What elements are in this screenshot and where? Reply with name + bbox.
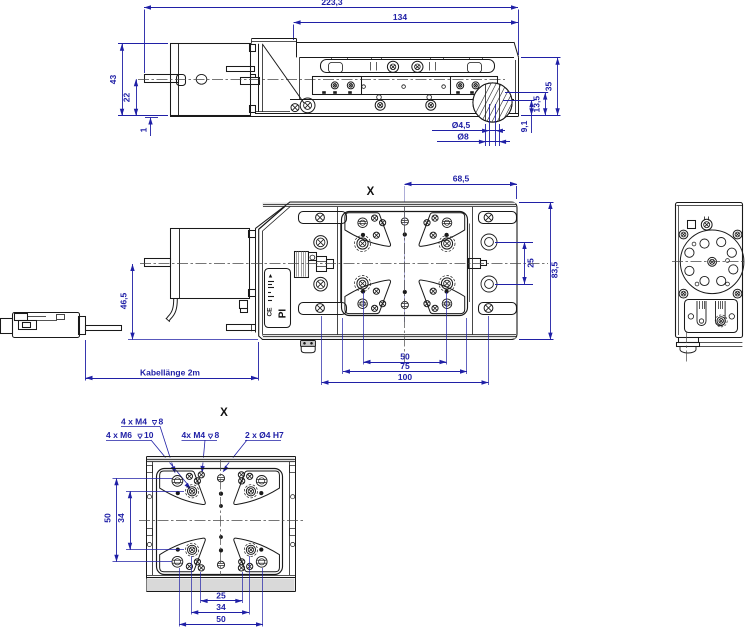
svg-text:43: 43 (108, 75, 118, 85)
svg-text:50: 50 (102, 513, 112, 523)
svg-text:PI: PI (278, 309, 289, 319)
svg-text:34: 34 (216, 602, 226, 612)
svg-text:Kabellänge 2m: Kabellänge 2m (140, 367, 200, 377)
svg-text:223,3: 223,3 (321, 0, 343, 7)
svg-text:22: 22 (122, 93, 132, 103)
svg-text:34: 34 (116, 513, 126, 523)
svg-text:10: 10 (144, 430, 154, 440)
svg-text:25: 25 (216, 590, 226, 600)
svg-text:75: 75 (400, 361, 410, 371)
svg-text:134: 134 (393, 12, 407, 22)
svg-text:▲: ▲ (268, 274, 274, 280)
svg-text:Ø4,5: Ø4,5 (452, 120, 471, 130)
svg-text:4 x M6: 4 x M6 (106, 430, 132, 440)
svg-text:X: X (367, 186, 375, 198)
svg-text:9,1: 9,1 (519, 120, 529, 132)
svg-text:4 x M4: 4 x M4 (121, 417, 147, 427)
svg-text:CE: CE (267, 307, 274, 317)
svg-text:8: 8 (159, 417, 164, 427)
svg-text:50: 50 (400, 351, 410, 361)
svg-text:100: 100 (398, 372, 412, 382)
svg-text:25: 25 (526, 258, 536, 268)
svg-text:X: X (220, 407, 228, 419)
svg-text:1: 1 (139, 127, 149, 132)
svg-text:68,5: 68,5 (453, 174, 470, 184)
svg-text:4x M4: 4x M4 (182, 430, 206, 440)
svg-text:35: 35 (544, 82, 554, 92)
svg-text:2 x Ø4 H7: 2 x Ø4 H7 (245, 430, 284, 440)
svg-text:Ø8: Ø8 (457, 131, 469, 141)
svg-text:50: 50 (216, 614, 226, 624)
svg-text:83,5: 83,5 (550, 261, 560, 278)
svg-text:8: 8 (215, 430, 220, 440)
svg-text:46,5: 46,5 (118, 292, 128, 309)
